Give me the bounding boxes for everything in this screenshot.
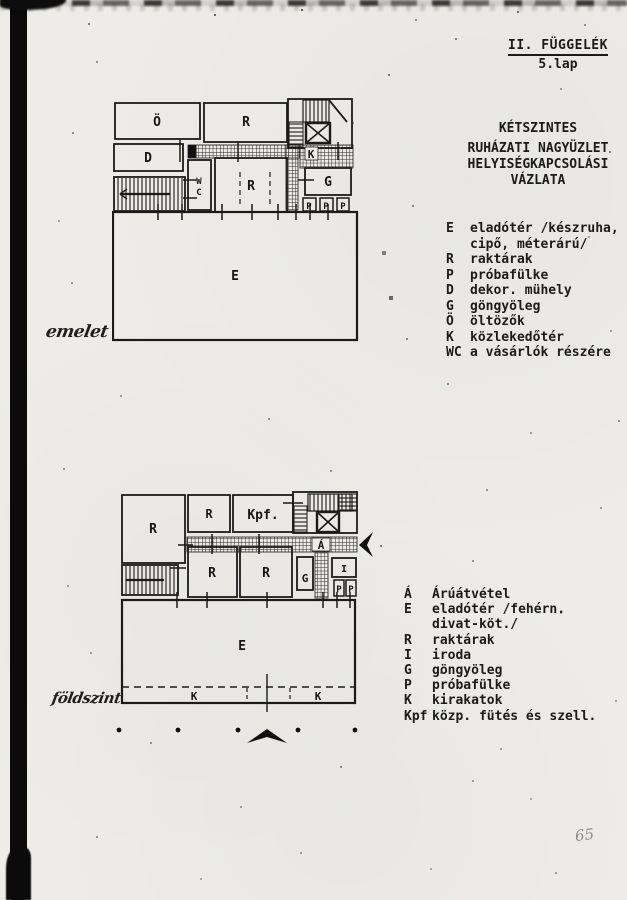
scan-speckles	[0, 0, 2, 2]
legend-symbol: K	[446, 330, 470, 346]
label-kirakat-left: K	[191, 690, 198, 703]
label-iroda: I	[341, 564, 347, 575]
title-line-2: RUHÁZATI NAGYÜZLET	[453, 141, 623, 157]
label-gongyoleg: G	[324, 175, 332, 190]
legend-symbol: I	[404, 648, 432, 663]
label-aruatvetel: Á	[318, 539, 325, 552]
label-gongyoleg: G	[302, 572, 309, 585]
stairs-bottom-left	[114, 177, 185, 211]
legend-symbol: E	[404, 602, 432, 632]
legend-symbol: E	[446, 221, 470, 252]
kirakat-dividers	[247, 688, 290, 703]
stairs-left	[122, 565, 178, 595]
label-wc-c: C	[196, 188, 201, 198]
entry-arrow-icon	[359, 532, 373, 557]
corridor-door-block	[188, 145, 196, 158]
label-dekor: D	[144, 151, 152, 166]
legend-text: öltözők	[470, 314, 525, 330]
legend-text: göngyöleg	[470, 299, 540, 315]
label-raktar-big: R	[149, 522, 157, 537]
elevator-x-icon	[306, 123, 330, 143]
scanned-document-page: II. FÜGGELÉK 5.lap KÉTSZINTES RUHÁZATI N…	[0, 0, 627, 900]
caption-emelet: emelet	[44, 322, 109, 342]
document-title: KÉTSZINTES RUHÁZATI NAGYÜZLET HELYISÉGKA…	[453, 121, 623, 189]
legend-row: Eeladótér /készruha, cipő, méterárú/	[446, 221, 619, 252]
label-eladoter: E	[231, 269, 239, 284]
legend-symbol: P	[404, 678, 432, 693]
title-line-3: HELYISÉGKAPCSOLÁSI	[453, 157, 623, 173]
corridor-vertical	[286, 145, 298, 210]
legend-row: Iiroda	[404, 648, 596, 663]
column-dots	[117, 728, 358, 733]
legend-row: Ppróbafülke	[404, 678, 596, 693]
legend-text: Árúátvétel	[432, 587, 510, 602]
elevator-x-icon	[317, 512, 339, 532]
legend-row: Kkirakatok	[404, 693, 596, 708]
legend-text: próbafülke	[470, 268, 548, 284]
caption-foldszint: földszint	[50, 689, 122, 707]
label-raktar-top: R	[242, 115, 250, 130]
appendix-title: II. FÜGGELÉK	[508, 38, 608, 56]
landing-hatch	[289, 122, 303, 147]
legend-symbol: G	[446, 299, 470, 315]
corridor-horizontal	[196, 145, 300, 158]
stairs-diagonal	[329, 100, 347, 122]
legend-row: Rraktárak	[446, 252, 619, 268]
legend-symbol: R	[404, 633, 432, 648]
legend-text: raktárak	[432, 633, 495, 648]
legend-row: Kközlekedőtér	[446, 330, 619, 346]
legend-symbol: Kpf	[404, 709, 432, 724]
scan-top-noise-2	[0, 4, 627, 11]
floor-plan-emelet: Ö R D W C R K G P P P E	[112, 98, 359, 344]
title-line-1: KÉTSZINTES	[453, 121, 623, 137]
legend-text: közlekedőtér	[470, 330, 564, 346]
legend-text: próbafülke	[432, 678, 510, 693]
legend-row: Eeladótér /fehérn. divat-köt./	[404, 602, 596, 632]
legend-row: Rraktárak	[404, 633, 596, 648]
label-raktar-2: R	[262, 566, 270, 581]
legend-row: Ddekor. mühely	[446, 283, 619, 299]
legend-text: göngyöleg	[432, 663, 502, 678]
landing-hatch-right	[339, 494, 357, 511]
label-eladoter: E	[238, 639, 246, 654]
legend-text: eladótér /készruha, cipő, méterárú/	[470, 221, 619, 252]
legend-row: ÁÁrúátvétel	[404, 587, 596, 602]
label-p2: P	[323, 202, 329, 212]
legend-row: Ggöngyöleg	[404, 663, 596, 678]
landing-hatch-left	[294, 506, 307, 532]
legend-symbol: Ö	[446, 314, 470, 330]
scan-left-black-bar	[10, 0, 27, 900]
legend-row: Kpfközp. fütés és szell.	[404, 709, 596, 724]
legend-row: Ppróbafülke	[446, 268, 619, 284]
legend-symbol: WC	[446, 345, 470, 361]
legend-text: közp. fütés és szell.	[432, 709, 596, 724]
legend-row: Ööltözők	[446, 314, 619, 330]
legend-symbol: Á	[404, 587, 432, 602]
legend-text: iroda	[432, 648, 471, 663]
label-p3: P	[340, 202, 346, 212]
label-p1: P	[336, 585, 342, 595]
legend-symbol: P	[446, 268, 470, 284]
label-kozlekedo: K	[308, 148, 315, 161]
floor-plan-foldszint: R R Kpf. Á R R G I P P E K K	[112, 488, 375, 758]
stairwell-block-top-right	[288, 99, 352, 148]
legend-symbol: R	[446, 252, 470, 268]
label-kirakat-right: K	[315, 690, 322, 703]
appendix-header: II. FÜGGELÉK 5.lap	[508, 38, 608, 72]
legend-text: dekor. mühely	[470, 283, 572, 299]
legend-foldszint: ÁÁrúátvétel Eeladótér /fehérn. divat-köt…	[404, 587, 596, 724]
label-raktar-topsmall: R	[205, 507, 213, 521]
stairwell-block-top-right	[293, 492, 357, 533]
legend-symbol: G	[404, 663, 432, 678]
legend-text: kirakatok	[432, 693, 502, 708]
legend-text: eladótér /fehérn. divat-köt./	[432, 602, 565, 632]
stairs-hatch	[303, 100, 329, 122]
label-raktar-mid: R	[247, 179, 255, 194]
entrance-chevron-icon	[247, 729, 287, 743]
legend-symbol: D	[446, 283, 470, 299]
label-kpf: Kpf.	[247, 508, 278, 523]
appendix-page-label: 5.lap	[508, 57, 608, 72]
legend-symbol: K	[404, 693, 432, 708]
dashed-partitions	[240, 172, 270, 208]
legend-emelet: Eeladótér /készruha, cipő, méterárú/ Rra…	[446, 221, 619, 361]
page-number: 65	[574, 825, 595, 845]
legend-row: Ggöngyöleg	[446, 299, 619, 315]
scan-blob-bottom-left	[6, 848, 31, 900]
legend-text: a vásárlók részére	[470, 345, 611, 361]
corridor-vertical	[315, 552, 328, 598]
label-oltozok: Ö	[153, 114, 161, 130]
legend-row: WCa vásárlók részére	[446, 345, 619, 361]
label-p1: P	[306, 202, 312, 212]
legend-text: raktárak	[470, 252, 533, 268]
label-p2: P	[348, 585, 354, 595]
label-raktar-1: R	[208, 566, 216, 581]
label-wc-w: W	[196, 177, 202, 187]
title-line-4: VÁZLATA	[453, 173, 623, 189]
